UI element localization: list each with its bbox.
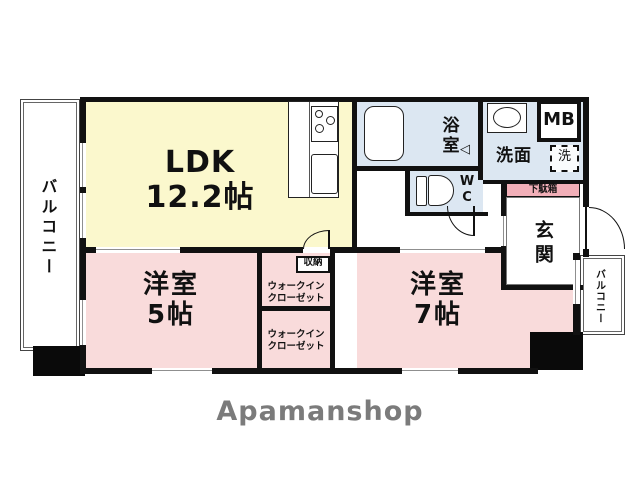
floorplan-image: バルコニー バルコニー ◁	[0, 0, 640, 480]
structure-block-right	[530, 332, 583, 370]
wic-upper-line2: クローゼット	[262, 293, 330, 305]
wc-door-blade	[473, 206, 475, 236]
bathtub	[364, 106, 404, 161]
wic-lower-line2: クローゼット	[262, 341, 330, 353]
wall-wic-middle	[257, 306, 335, 311]
window-room5	[80, 300, 86, 345]
entrance-label: 玄関	[531, 206, 553, 282]
wall-right-stub	[583, 249, 589, 257]
wall-right-upper	[583, 97, 589, 207]
wc-label: W C	[455, 174, 479, 207]
storage-door-blade	[328, 230, 330, 249]
wall-bath-washroom	[478, 97, 483, 180]
washbasin-bowl	[493, 107, 521, 128]
window-ldk-2	[80, 193, 86, 238]
room5-name: 洋室	[101, 271, 241, 301]
kitchen-counter-edge	[309, 102, 310, 197]
wall-bath-bottom	[352, 166, 478, 171]
washing-machine-label: 洗	[550, 150, 579, 165]
stove-burner-1	[315, 110, 323, 118]
window-room7-balcony	[573, 260, 580, 304]
room7-name: 洋室	[368, 271, 508, 301]
wic-lower-label: ウォークイン クローゼット	[262, 329, 330, 353]
room7-label: 洋室 7帖	[368, 271, 508, 331]
window-ldk-1	[80, 143, 86, 187]
ldk-size: 12.2帖	[105, 181, 295, 216]
washroom-label: 洗面	[486, 147, 542, 167]
wall-wc-left	[405, 166, 410, 212]
room7-size: 7帖	[368, 301, 508, 331]
shoe-cabinet-label: 下駄箱	[506, 185, 580, 196]
wall-ldk-right	[352, 97, 357, 253]
wall-entrance-bottom	[501, 285, 583, 290]
room5-label: 洋室 5帖	[101, 271, 241, 331]
kitchen-sink	[311, 154, 338, 194]
wc-door-arc	[447, 206, 474, 236]
sliding-door-ldk-room5	[96, 247, 180, 253]
window-room7-bottom	[402, 368, 458, 374]
wc-line1: W	[455, 174, 479, 190]
meter-box-label: MB	[537, 110, 581, 131]
stove-burner-2	[326, 116, 335, 125]
bath-label: 浴室	[438, 108, 458, 164]
wc-line2: C	[455, 190, 479, 206]
wic-upper-label: ウォークイン クローゼット	[262, 281, 330, 305]
door-hall-entrance	[501, 216, 506, 246]
stove-burner-3	[315, 124, 324, 133]
balcony-left-label: バルコニー	[38, 130, 56, 325]
apamanshop-logo: Apamanshop	[0, 396, 640, 427]
wall-bottom	[80, 368, 538, 374]
entrance-door-arc	[589, 207, 625, 249]
ldk-name: LDK	[105, 146, 295, 181]
wall-wc-bottom	[405, 212, 488, 216]
toilet-tank	[416, 176, 427, 206]
entrance-door-blade	[585, 207, 587, 249]
window-room5-bottom	[152, 368, 212, 374]
sliding-door-room7	[400, 247, 485, 253]
wic-upper-line1: ウォークイン	[262, 281, 330, 293]
structure-block-left	[33, 346, 85, 376]
wic-lower-line1: ウォークイン	[262, 329, 330, 341]
ldk-label: LDK 12.2帖	[105, 146, 295, 215]
balcony-right-label: バルコニー	[593, 262, 605, 330]
storage-label: 収納	[296, 258, 330, 269]
room5-size: 5帖	[101, 301, 241, 331]
